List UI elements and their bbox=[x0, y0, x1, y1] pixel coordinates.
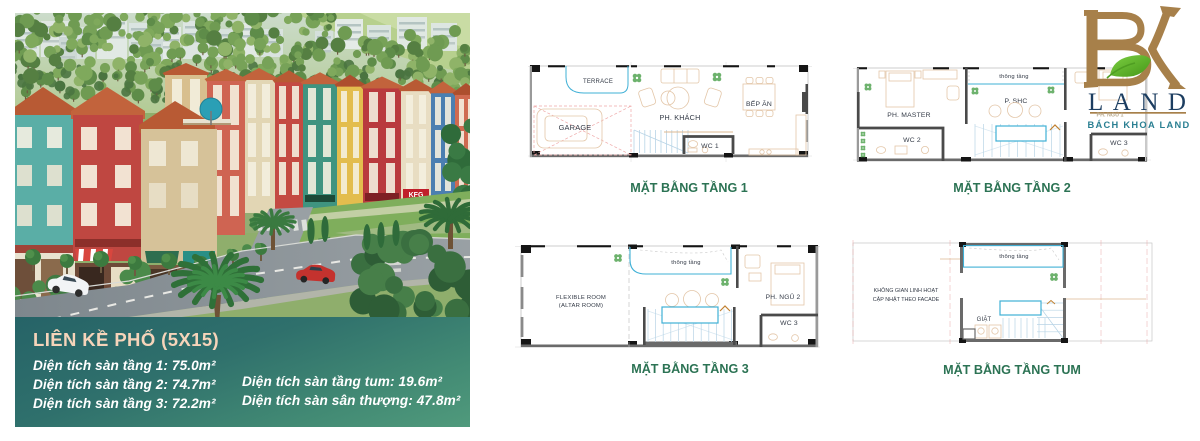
svg-text:CẬP NHẬT THEO FACADE: CẬP NHẬT THEO FACADE bbox=[873, 296, 940, 303]
svg-text:WC 1: WC 1 bbox=[701, 143, 719, 150]
svg-text:GARAGE: GARAGE bbox=[559, 123, 592, 132]
svg-text:BÁCH KHOA LAND: BÁCH KHOA LAND bbox=[1087, 120, 1190, 130]
svg-text:FLEXIBLE ROOM: FLEXIBLE ROOM bbox=[556, 295, 606, 301]
svg-text:PH. MASTER: PH. MASTER bbox=[887, 112, 931, 119]
svg-text:KHÔNG GIAN LINH HOẠT: KHÔNG GIAN LINH HOẠT bbox=[874, 287, 939, 294]
svg-text:WC 3: WC 3 bbox=[780, 320, 798, 327]
svg-text:(ALTAR ROOM): (ALTAR ROOM) bbox=[559, 303, 603, 309]
svg-text:GIẶT: GIẶT bbox=[977, 316, 992, 323]
svg-text:thông tầng: thông tầng bbox=[999, 254, 1028, 260]
svg-text:PH. KHÁCH: PH. KHÁCH bbox=[660, 113, 701, 122]
svg-text:WC 3: WC 3 bbox=[1110, 140, 1128, 147]
svg-text:PH. NGỦ 2: PH. NGỦ 2 bbox=[766, 292, 801, 301]
svg-text:WC 2: WC 2 bbox=[903, 137, 921, 144]
svg-text:PH. NGỦ 1: PH. NGỦ 1 bbox=[1097, 112, 1124, 119]
svg-text:thông tầng: thông tầng bbox=[671, 260, 700, 266]
svg-text:thông tầng: thông tầng bbox=[999, 74, 1028, 80]
svg-text:P. SHC: P. SHC bbox=[1005, 98, 1028, 105]
svg-text:TERRACE: TERRACE bbox=[583, 79, 613, 85]
